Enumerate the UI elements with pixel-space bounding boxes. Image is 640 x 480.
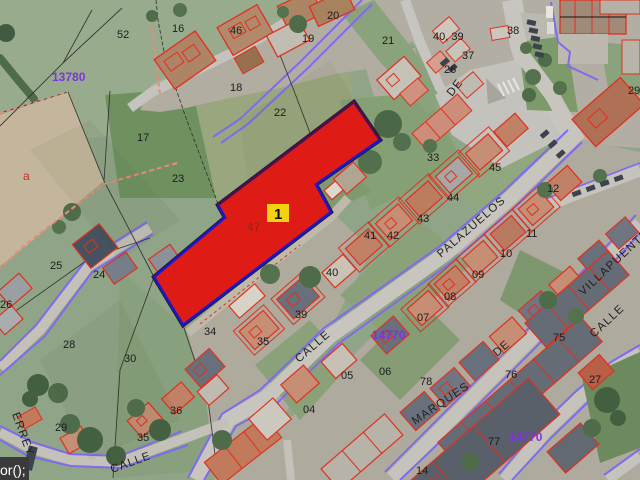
- svg-text:17: 17: [137, 132, 149, 144]
- svg-text:13780: 13780: [52, 70, 86, 84]
- svg-text:26: 26: [0, 299, 12, 311]
- svg-text:10: 10: [500, 248, 512, 260]
- svg-text:41: 41: [364, 230, 376, 242]
- svg-text:52: 52: [117, 29, 129, 41]
- svg-text:08: 08: [444, 291, 456, 303]
- svg-text:05: 05: [341, 370, 353, 382]
- svg-text:07: 07: [417, 312, 429, 324]
- svg-text:04: 04: [303, 404, 315, 416]
- svg-text:19: 19: [302, 33, 314, 45]
- svg-text:1: 1: [274, 206, 282, 223]
- svg-text:18: 18: [230, 82, 242, 94]
- svg-text:76: 76: [505, 369, 517, 381]
- svg-text:44: 44: [447, 192, 459, 204]
- svg-text:12: 12: [547, 183, 559, 195]
- svg-text:34: 34: [204, 326, 216, 338]
- svg-text:75: 75: [553, 332, 565, 344]
- svg-text:20: 20: [327, 10, 339, 22]
- svg-text:14770: 14770: [509, 430, 543, 444]
- svg-text:35: 35: [137, 432, 149, 444]
- svg-text:23: 23: [172, 173, 184, 185]
- svg-text:06: 06: [379, 366, 391, 378]
- svg-text:38: 38: [507, 25, 519, 37]
- svg-text:47: 47: [247, 220, 261, 234]
- svg-text:42: 42: [387, 230, 399, 242]
- svg-text:26: 26: [444, 64, 456, 76]
- svg-text:27: 27: [589, 374, 601, 386]
- svg-text:43: 43: [417, 213, 429, 225]
- svg-text:33: 33: [427, 152, 439, 164]
- svg-text:14770: 14770: [372, 328, 406, 342]
- svg-text:77: 77: [488, 436, 500, 448]
- svg-text:45: 45: [489, 162, 501, 174]
- svg-text:36: 36: [170, 405, 182, 417]
- svg-text:24: 24: [93, 269, 105, 281]
- svg-text:39: 39: [295, 309, 307, 321]
- svg-text:78: 78: [420, 376, 432, 388]
- svg-text:a: a: [23, 169, 30, 183]
- svg-text:30: 30: [124, 353, 136, 365]
- svg-text:14: 14: [416, 465, 428, 477]
- svg-text:25: 25: [50, 260, 62, 272]
- svg-text:16: 16: [172, 23, 184, 35]
- svg-text:28: 28: [63, 339, 75, 351]
- svg-text:29: 29: [628, 85, 640, 97]
- svg-text:or();: or();: [0, 462, 26, 478]
- svg-text:21: 21: [382, 35, 394, 47]
- svg-text:40: 40: [326, 267, 338, 279]
- svg-text:29: 29: [55, 422, 67, 434]
- svg-text:46: 46: [230, 25, 242, 37]
- svg-text:35: 35: [257, 336, 269, 348]
- svg-text:40, 39: 40, 39: [433, 31, 464, 43]
- svg-text:22: 22: [274, 107, 286, 119]
- svg-text:09: 09: [472, 269, 484, 281]
- svg-text:11: 11: [526, 228, 537, 240]
- svg-text:37: 37: [462, 50, 474, 62]
